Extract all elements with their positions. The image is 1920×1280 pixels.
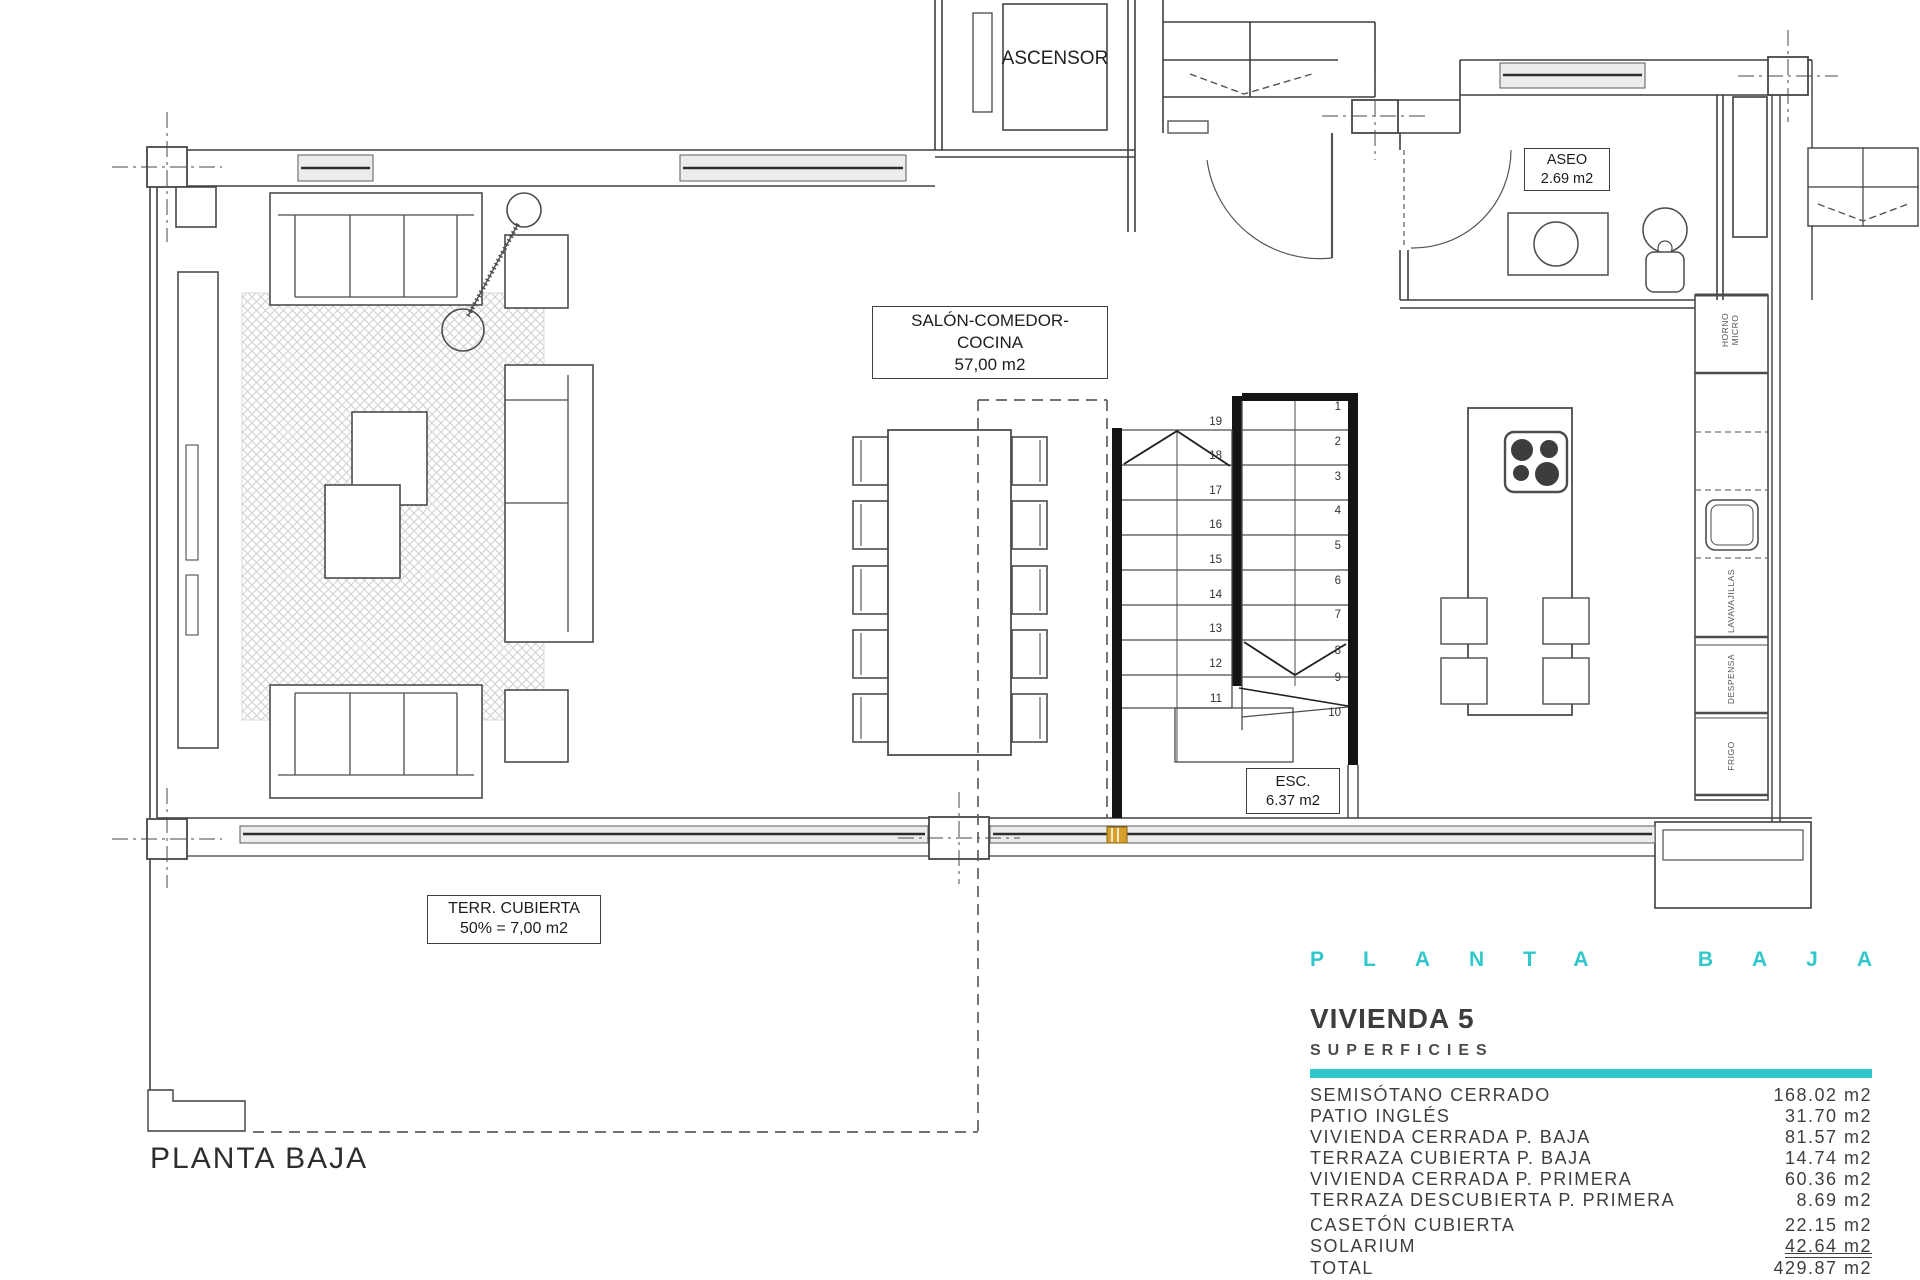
- table-row-total: TOTAL 429.87 m2: [1310, 1258, 1872, 1279]
- room-area: 57,00 m2: [881, 354, 1099, 376]
- entry-door-swing: [1207, 160, 1332, 259]
- column-symbol: [112, 788, 222, 888]
- sofa-top: [270, 193, 482, 305]
- floor-title-word: PLANTA: [1310, 948, 1628, 972]
- label-ascensor: ASCENSOR: [1000, 48, 1110, 70]
- label-horno-micro: HORNO MICRO: [1720, 307, 1740, 353]
- room-area: 6.37 m2: [1255, 791, 1331, 810]
- dining-chairs-left: [853, 437, 888, 742]
- side-table: [505, 690, 568, 762]
- stair-number: 6: [1335, 575, 1341, 587]
- stair-number: 9: [1335, 672, 1341, 684]
- label-salon-comedor-cocina: SALÓN-COMEDOR-COCINA 57,00 m2: [872, 306, 1108, 379]
- stair-wall: [1112, 428, 1122, 818]
- row-label: SEMISÓTANO CERRADO: [1310, 1085, 1551, 1106]
- stair-number: 11: [1210, 693, 1222, 705]
- table-row: VIVIENDA CERRADA P. PRIMERA 60.36 m2: [1310, 1169, 1872, 1190]
- tv-cabinet: [178, 272, 218, 748]
- aseo-door-swing: [1411, 150, 1511, 248]
- floor-caption: PLANTA BAJA: [150, 1142, 368, 1176]
- table-row: CASETÓN CUBIERTA 22.15 m2: [1310, 1215, 1872, 1236]
- row-value: 168.02 m2: [1773, 1085, 1872, 1106]
- stair-number: 13: [1209, 623, 1222, 635]
- label-terraza-cubierta: TERR. CUBIERTA 50% = 7,00 m2: [427, 895, 601, 944]
- stair-wall: [1348, 393, 1358, 765]
- coffee-table: [325, 485, 400, 578]
- floor-title: PLANTA BAJA: [1310, 948, 1872, 972]
- stair-wall: [1232, 396, 1242, 686]
- sofa-bottom: [270, 685, 482, 798]
- room-name: ESC.: [1255, 772, 1331, 791]
- column-symbol: [1322, 72, 1428, 160]
- wc-cistern: [1646, 252, 1684, 292]
- porch-slope-arrow: [1190, 74, 1312, 94]
- stair-flight-right: [1239, 401, 1348, 730]
- row-label: SOLARIUM: [1310, 1236, 1416, 1258]
- table-row: PATIO INGLÉS 31.70 m2: [1310, 1106, 1872, 1127]
- stair-number: 4: [1335, 505, 1342, 517]
- washbasin-bowl: [1534, 222, 1578, 266]
- kitchen-sink: [1706, 500, 1758, 550]
- stair-number: 19: [1209, 416, 1222, 428]
- cyan-divider-bar: [1310, 1069, 1872, 1078]
- row-value: 429.87 m2: [1773, 1258, 1872, 1279]
- stair-number: 8: [1335, 645, 1341, 657]
- chaise-sofa: [505, 365, 593, 642]
- stair-number: 14: [1209, 589, 1222, 601]
- room-name: SALÓN-COMEDOR-COCINA: [881, 310, 1099, 354]
- section-title: SUPERFICIES: [1310, 1042, 1872, 1060]
- table-row: TERRAZA CUBIERTA P. BAJA 14.74 m2: [1310, 1148, 1872, 1169]
- stair-number: 15: [1209, 554, 1222, 566]
- stair-step-numbers: 19 18 17 16 15 14 13 12 11 1 2 3 4 5 6 7…: [1209, 401, 1341, 719]
- cooktop: [1505, 432, 1567, 492]
- row-value: 42.64 m2: [1785, 1236, 1872, 1258]
- column-symbol: [112, 112, 222, 242]
- label-lavavajillas: LAVAVAJILLAS: [1726, 569, 1736, 633]
- stair-number: 2: [1335, 436, 1341, 448]
- row-label: TERRAZA CUBIERTA P. BAJA: [1310, 1148, 1592, 1169]
- row-label: TERRAZA DESCUBIERTA P. PRIMERA: [1310, 1190, 1675, 1211]
- stair-number: 10: [1328, 707, 1341, 719]
- row-label: VIVIENDA CERRADA P. PRIMERA: [1310, 1169, 1632, 1190]
- room-name: TERR. CUBIERTA: [436, 899, 592, 919]
- label-despensa: DESPENSA: [1726, 654, 1736, 704]
- dining-chairs-right: [1012, 437, 1047, 742]
- aseo-fixtures: [1508, 208, 1687, 292]
- table-row: SEMISÓTANO CERRADO 168.02 m2: [1310, 1085, 1872, 1106]
- stair-number: 3: [1335, 471, 1341, 483]
- stair-number: 18: [1209, 450, 1222, 462]
- room-area: 2.69 m2: [1529, 170, 1605, 189]
- cabinet-column: [1695, 295, 1768, 800]
- label-aseo: ASEO 2.69 m2: [1524, 148, 1610, 191]
- stair-number: 1: [1335, 401, 1341, 413]
- label-escalera: ESC. 6.37 m2: [1246, 768, 1340, 814]
- stair-number: 7: [1335, 609, 1341, 621]
- stair-landing: [1175, 708, 1293, 762]
- row-label: PATIO INGLÉS: [1310, 1106, 1450, 1127]
- floor-title-word: BAJA: [1698, 948, 1911, 972]
- table-row: SOLARIUM 42.64 m2: [1310, 1236, 1872, 1258]
- dining-set: [853, 430, 1047, 755]
- stair-number: 5: [1335, 540, 1341, 552]
- kitchen: [1441, 295, 1768, 800]
- surfaces-table: SEMISÓTANO CERRADO 168.02 m2 PATIO INGLÉ…: [1310, 1085, 1872, 1279]
- row-value: 8.69 m2: [1796, 1190, 1872, 1211]
- table-row: TERRAZA DESCUBIERTA P. PRIMERA 8.69 m2: [1310, 1190, 1872, 1211]
- row-value: 31.70 m2: [1785, 1106, 1872, 1127]
- stair-number: 12: [1209, 658, 1222, 670]
- column-symbol: [1738, 30, 1838, 122]
- row-value: 81.57 m2: [1785, 1127, 1872, 1148]
- room-name: ASEO: [1529, 151, 1605, 170]
- row-value: 14.74 m2: [1785, 1148, 1872, 1169]
- row-label: TOTAL: [1310, 1258, 1374, 1279]
- kitchen-sink-inner: [1711, 505, 1753, 545]
- stair-number: 17: [1209, 485, 1222, 497]
- stair-wall: [1242, 393, 1358, 401]
- row-value: 22.15 m2: [1785, 1215, 1872, 1236]
- unit-title: VIVIENDA 5: [1310, 1003, 1872, 1035]
- title-block: PLANTA BAJA VIVIENDA 5 SUPERFICIES SEMIS…: [1310, 948, 1872, 1279]
- threshold-marker: [1107, 827, 1127, 843]
- side-table: [505, 235, 568, 308]
- dining-table: [888, 430, 1011, 755]
- row-label: VIVIENDA CERRADA P. BAJA: [1310, 1127, 1591, 1148]
- floorplan-page: 19 18 17 16 15 14 13 12 11 1 2 3 4 5 6 7…: [0, 0, 1920, 1280]
- living-furniture: [178, 193, 593, 798]
- table-row: VIVIENDA CERRADA P. BAJA 81.57 m2: [1310, 1127, 1872, 1148]
- room-area: 50% = 7,00 m2: [436, 919, 592, 939]
- row-label: CASETÓN CUBIERTA: [1310, 1215, 1515, 1236]
- row-value: 60.36 m2: [1785, 1169, 1872, 1190]
- label-frigo: FRIGO: [1726, 741, 1736, 770]
- stair-number: 16: [1209, 519, 1222, 531]
